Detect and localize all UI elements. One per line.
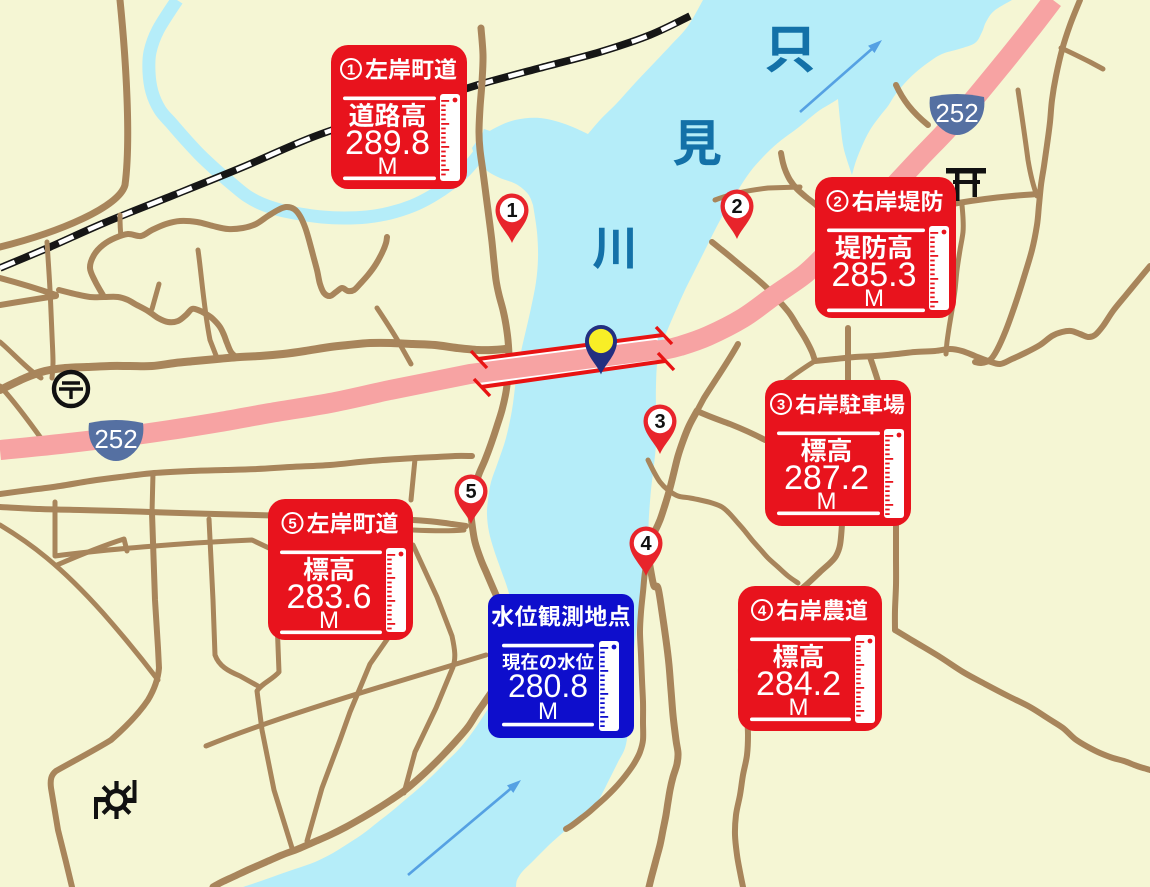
svg-text:M: M <box>538 698 558 725</box>
svg-text:2: 2 <box>833 193 841 210</box>
svg-text:2: 2 <box>731 196 742 218</box>
svg-text:4: 4 <box>640 533 652 555</box>
svg-text:M: M <box>378 153 398 180</box>
svg-text:M: M <box>789 694 809 721</box>
svg-text:5: 5 <box>288 515 296 532</box>
svg-text:3: 3 <box>654 411 665 433</box>
svg-text:4: 4 <box>758 602 767 619</box>
svg-text:1: 1 <box>347 61 355 78</box>
svg-text:M: M <box>319 607 339 634</box>
svg-text:3: 3 <box>777 396 785 413</box>
svg-text:1: 1 <box>506 200 517 222</box>
svg-text:M: M <box>864 285 884 312</box>
svg-text:252: 252 <box>935 98 978 128</box>
svg-text:252: 252 <box>94 424 137 454</box>
svg-text:5: 5 <box>465 481 476 503</box>
svg-text:M: M <box>817 488 837 515</box>
